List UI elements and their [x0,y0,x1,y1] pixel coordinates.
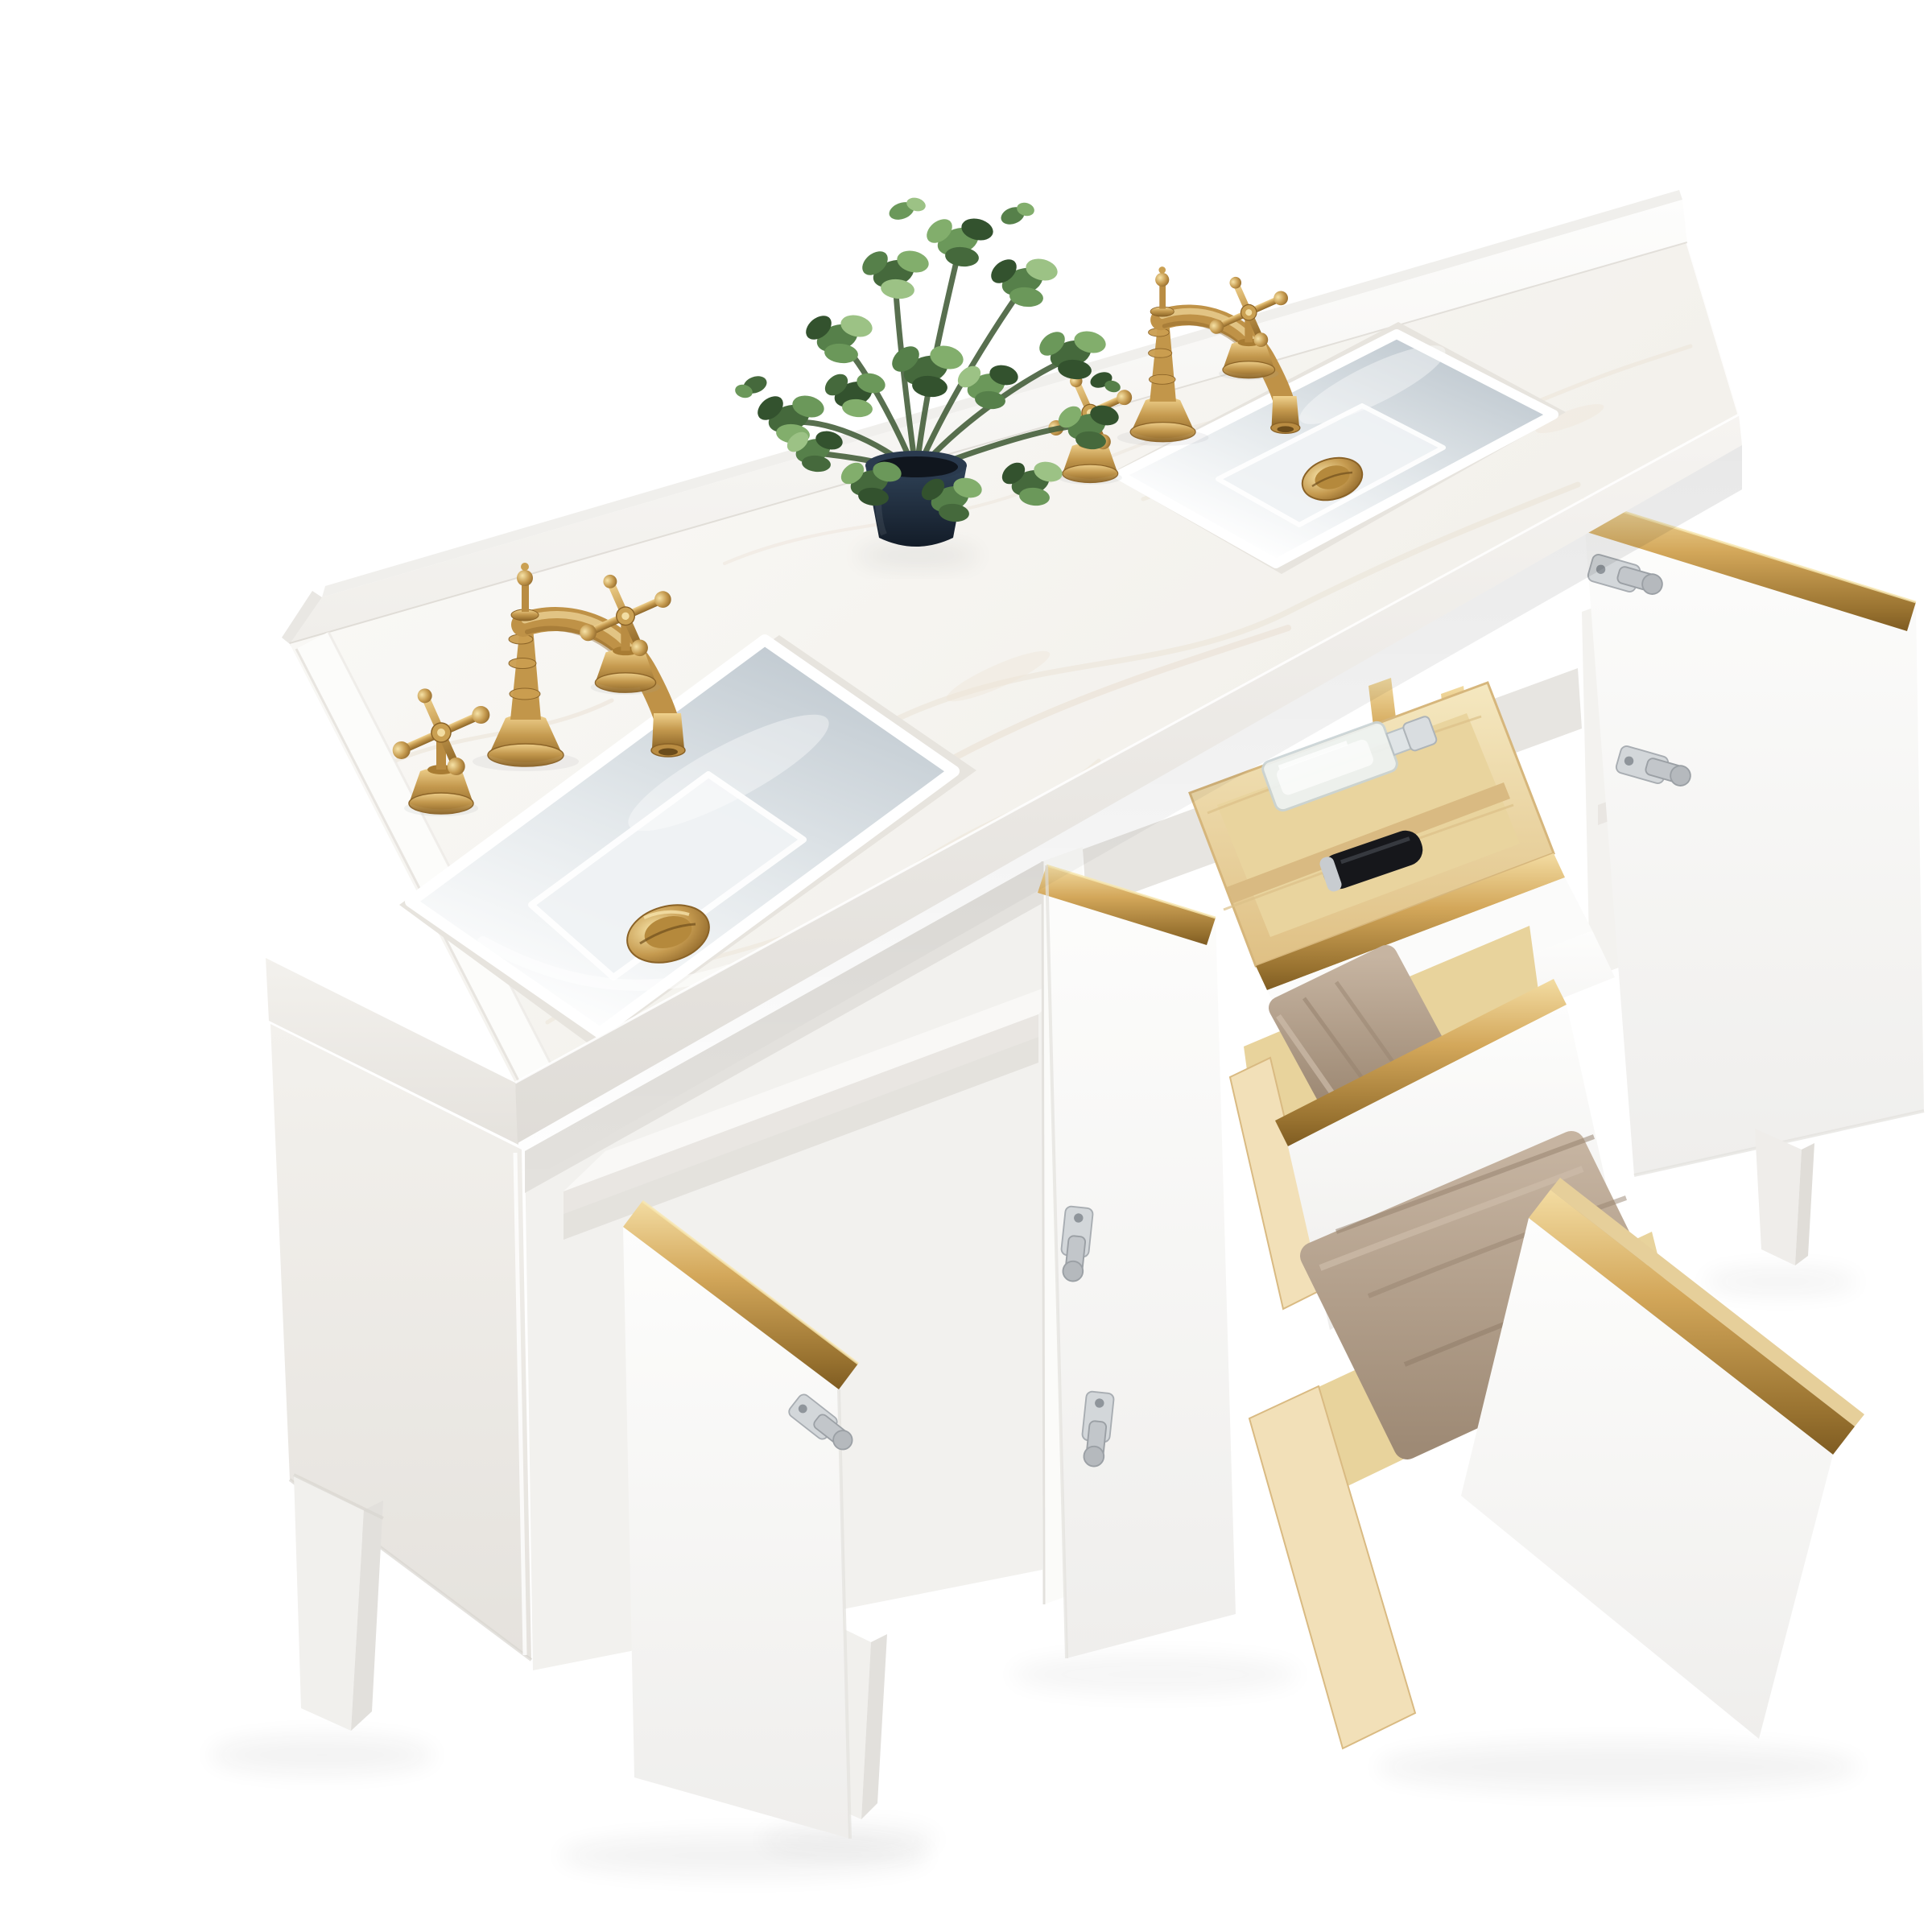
vanity-illustration [0,0,1932,1932]
product-photo-stage [0,0,1932,1932]
door-right [1574,499,1924,1175]
cabinet-leg-front-left [294,1475,383,1731]
cabinet-leg-back-right [1755,1129,1814,1265]
door-middle [1038,865,1236,1658]
